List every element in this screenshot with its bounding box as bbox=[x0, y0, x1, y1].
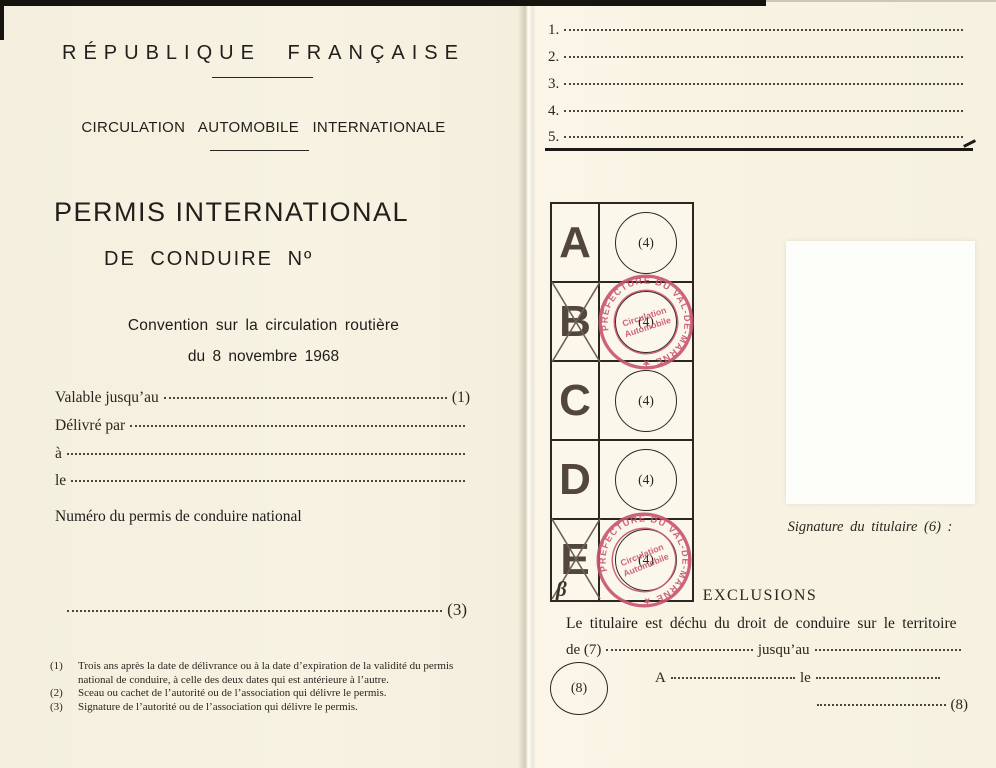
dotted-line bbox=[130, 425, 465, 427]
list-item-4: 4. bbox=[548, 103, 968, 120]
republique-title: RÉPUBLIQUE FRANÇAISE bbox=[0, 42, 527, 65]
list-item-5: 5. bbox=[548, 129, 968, 146]
category-circle-cell: (4) PRÉFECTURE DU VAL-DE-MARNE ★ Circula… bbox=[600, 283, 692, 360]
circulation-subtitle: CIRCULATION AUTOMOBILE INTERNATIONALE bbox=[0, 119, 527, 136]
convention-line-2: du 8 novembre 1968 bbox=[0, 348, 527, 366]
top-edge-bar bbox=[0, 0, 766, 6]
authority-signature-line: (3) bbox=[62, 600, 467, 620]
dotted-line bbox=[564, 110, 963, 112]
category-letter: D bbox=[552, 441, 600, 518]
exclusion-place-date-row: A le bbox=[655, 670, 945, 687]
field-row-a: à bbox=[55, 445, 470, 463]
field-suffix: (1) bbox=[452, 389, 470, 407]
field-row-valable: Valable jusqu’au (1) bbox=[55, 389, 470, 407]
le-label: le bbox=[800, 670, 811, 687]
page-fold bbox=[518, 0, 536, 768]
category-circle: (4) bbox=[615, 212, 677, 274]
subtitle-underline bbox=[210, 150, 309, 151]
category-circle: (4) bbox=[615, 370, 677, 432]
permit-number-title: DE CONDUIRE Nº bbox=[104, 248, 504, 271]
dotted-line bbox=[816, 677, 940, 679]
dotted-line bbox=[71, 480, 465, 482]
footnote-number: (3) bbox=[50, 701, 78, 715]
category-letter-cell: B bbox=[552, 283, 600, 360]
dotted-line bbox=[564, 136, 963, 138]
prefecture-stamp-icon: PRÉFECTURE DU VAL-DE-MARNE ★ Circulation… bbox=[596, 272, 696, 372]
dotted-line bbox=[564, 56, 963, 58]
footnote-text: Sceau ou cachet de l’autorité ou de l’as… bbox=[78, 687, 475, 701]
divider-rule bbox=[545, 148, 973, 151]
title-underline bbox=[212, 77, 313, 78]
top-edge-shadow bbox=[766, 0, 996, 2]
footnotes: (1) Trois ans après la date de délivranc… bbox=[50, 660, 475, 714]
list-number: 5. bbox=[548, 129, 559, 146]
permit-title: PERMIS INTERNATIONAL bbox=[54, 197, 524, 228]
jusquau-label: jusqu’au bbox=[758, 642, 810, 659]
dotted-line bbox=[671, 677, 795, 679]
category-letter: B bbox=[559, 297, 591, 347]
list-item-3: 3. bbox=[548, 76, 968, 93]
dotted-line bbox=[564, 29, 963, 31]
seal-circle-8: (8) bbox=[550, 662, 608, 715]
left-page: RÉPUBLIQUE FRANÇAISE CIRCULATION AUTOMOB… bbox=[0, 0, 527, 768]
category-circle-cell: (4) bbox=[600, 362, 692, 439]
category-table: A (4) B (4) bbox=[550, 202, 694, 602]
category-row-b: B (4) PRÉFECTURE DU VAL-DE-MAR bbox=[552, 283, 692, 362]
footnote-number: (2) bbox=[50, 687, 78, 701]
field-row-delivre: Délivré par bbox=[55, 417, 470, 435]
footnote-3: (3) Signature de l’autorité ou de l’asso… bbox=[50, 701, 475, 715]
list-item-2: 2. bbox=[548, 49, 968, 66]
category-circle: (4) bbox=[615, 449, 677, 511]
dotted-line bbox=[67, 453, 465, 455]
list-item-1: 1. bbox=[548, 22, 968, 39]
field-label: le bbox=[55, 472, 66, 490]
de-label: de (7) bbox=[566, 642, 601, 659]
dotted-line bbox=[67, 610, 442, 612]
footnote-2: (2) Sceau ou cachet de l’autorité ou de … bbox=[50, 687, 475, 701]
exclusions-heading: EXCLUSIONS bbox=[640, 587, 880, 605]
category-letter: A bbox=[552, 204, 600, 281]
line-suffix: (8) bbox=[951, 697, 969, 714]
national-permit-label: Numéro du permis de conduire national bbox=[55, 508, 302, 526]
list-number: 1. bbox=[548, 22, 559, 39]
international-driving-permit-document: RÉPUBLIQUE FRANÇAISE CIRCULATION AUTOMOB… bbox=[0, 0, 996, 768]
field-label: à bbox=[55, 445, 62, 463]
footnote-text: Signature de l’autorité ou de l’associat… bbox=[78, 701, 475, 715]
field-row-le: le bbox=[55, 472, 470, 490]
list-number: 2. bbox=[548, 49, 559, 66]
dotted-line bbox=[815, 649, 961, 651]
category-row-c: C (4) bbox=[552, 362, 692, 441]
field-label: Délivré par bbox=[55, 417, 125, 435]
dotted-line bbox=[606, 649, 752, 651]
footnote-text: Trois ans après la date de délivrance ou… bbox=[78, 660, 475, 687]
photo-box bbox=[786, 241, 975, 504]
dotted-line bbox=[817, 704, 946, 706]
dotted-line bbox=[164, 397, 447, 399]
category-circle-cell: (4) bbox=[600, 204, 692, 281]
exclusion-signature-row: (8) bbox=[812, 697, 968, 714]
field-label: Valable jusqu’au bbox=[55, 389, 159, 407]
list-number: 4. bbox=[548, 103, 559, 120]
signature-label: Signature du titulaire (6) : bbox=[760, 519, 980, 536]
handwritten-annotation: β bbox=[556, 577, 567, 602]
convention-line-1: Convention sur la circulation routière bbox=[0, 317, 527, 335]
signature-line-suffix: (3) bbox=[447, 600, 467, 620]
footnote-1: (1) Trois ans après la date de délivranc… bbox=[50, 660, 475, 687]
exclusion-territory-row: de (7) jusqu’au bbox=[566, 642, 966, 659]
a-label: A bbox=[655, 670, 666, 687]
category-letter: C bbox=[552, 362, 600, 439]
list-number: 3. bbox=[548, 76, 559, 93]
exclusions-body: Le titulaire est déchu du droit de condu… bbox=[566, 615, 968, 633]
footnote-number: (1) bbox=[50, 660, 78, 687]
dotted-line bbox=[564, 83, 963, 85]
left-edge-mark bbox=[0, 0, 4, 40]
